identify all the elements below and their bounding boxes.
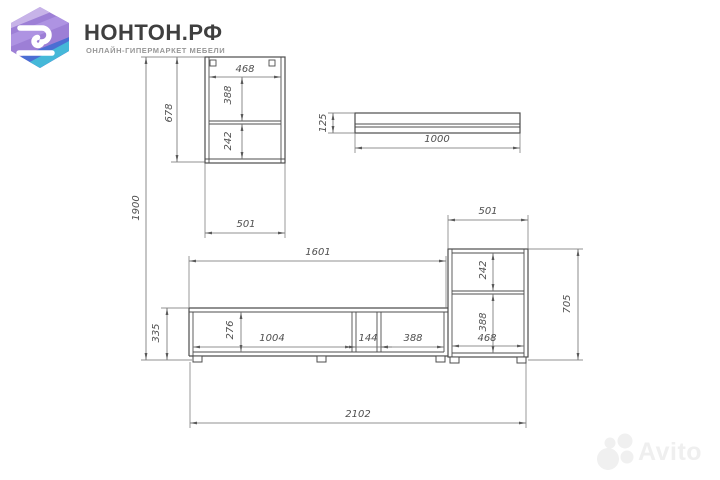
stand-foot — [317, 356, 326, 362]
dim-wall-upper-section: 388 — [223, 85, 234, 104]
dim-stand-left-compartment: 1004 — [259, 333, 284, 344]
dim-stand-length: 1601 — [305, 247, 330, 258]
dim-total-height: 1900 — [131, 195, 142, 220]
total-height-dimension: 1900 — [131, 57, 205, 360]
hanger-bracket-icon — [210, 60, 216, 66]
dim-shelf-thickness: 125 — [318, 113, 329, 132]
screenshot-canvas: НОНТОН.РФ ОНЛАЙН-ГИПЕРМАРКЕТ МЕБЕЛИ 468 — [0, 0, 720, 480]
dim-cabinet-lower-section: 388 — [478, 312, 489, 331]
dim-wall-width: 501 — [236, 219, 255, 230]
dim-stand-inner-height: 276 — [225, 320, 236, 339]
dim-wall-height: 678 — [164, 103, 175, 122]
dim-stand-height: 335 — [151, 323, 162, 342]
dim-wall-inner-width: 468 — [235, 64, 254, 75]
cabinet-foot — [517, 357, 526, 363]
shelf-outline — [355, 113, 520, 133]
side-cabinet-dimensions: 501 242 388 468 705 — [448, 206, 583, 360]
dim-stand-middle-compartment: 144 — [358, 333, 377, 344]
dim-total-width: 2102 — [345, 409, 370, 420]
hanger-bracket-icon — [269, 60, 275, 66]
wall-cabinet-dimensions: 468 388 242 678 501 — [164, 57, 285, 238]
dim-shelf-length: 1000 — [424, 134, 449, 145]
stand-foot — [193, 356, 202, 362]
dim-cabinet-inner-width: 468 — [477, 333, 496, 344]
stand-foot — [436, 356, 445, 362]
dim-wall-lower-section: 242 — [223, 131, 234, 150]
dim-cabinet-width: 501 — [478, 206, 497, 217]
tv-stand-dimensions: 1601 276 1004 144 388 335 2102 — [151, 247, 526, 428]
dim-cabinet-height: 705 — [562, 294, 573, 313]
furniture-dimension-drawing: 468 388 242 678 501 1900 — [0, 0, 720, 480]
dim-cabinet-upper-section: 242 — [478, 260, 489, 279]
dim-stand-right-compartment: 388 — [403, 333, 422, 344]
cabinet-foot — [450, 357, 459, 363]
